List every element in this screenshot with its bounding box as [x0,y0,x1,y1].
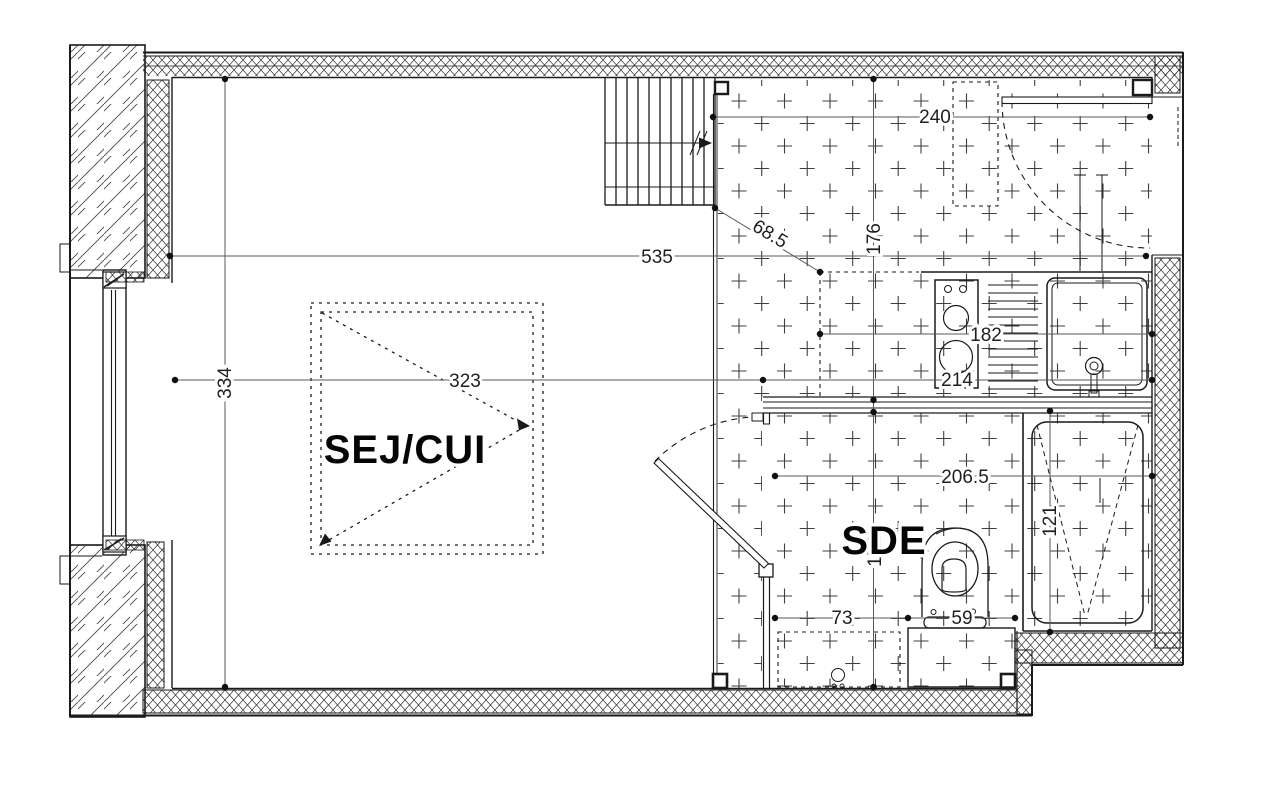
dim-wc-offset: 73 [831,608,852,629]
dim-shower-length: 121 [1040,505,1061,537]
stairs-direction-arrow [605,131,712,155]
dim-counter-run: 182 [970,325,1002,346]
dim-bathroom-width: 206.5 [941,467,989,488]
dim-overall-width: 535 [641,247,673,268]
dim-living-depth: 334 [215,367,236,399]
room-label-bathroom: SDE [841,519,926,563]
dim-wc-width: 59 [951,608,972,629]
room-label-living-kitchen: SEJ/CUI [324,428,487,472]
staircase [605,78,715,205]
floor-plan-drawing: 240 535 176 68.5 182 214 323 334 206.5 1… [0,0,1264,800]
dim-kitchen-depth: 176 [864,223,885,255]
floor-plan-page: 240 535 176 68.5 182 214 323 334 206.5 1… [0,0,1264,800]
dim-kitchen-right-width: 214 [941,370,973,391]
dim-living-width: 323 [449,371,481,392]
window-left [103,270,144,555]
dim-entry-width: 240 [919,107,951,128]
